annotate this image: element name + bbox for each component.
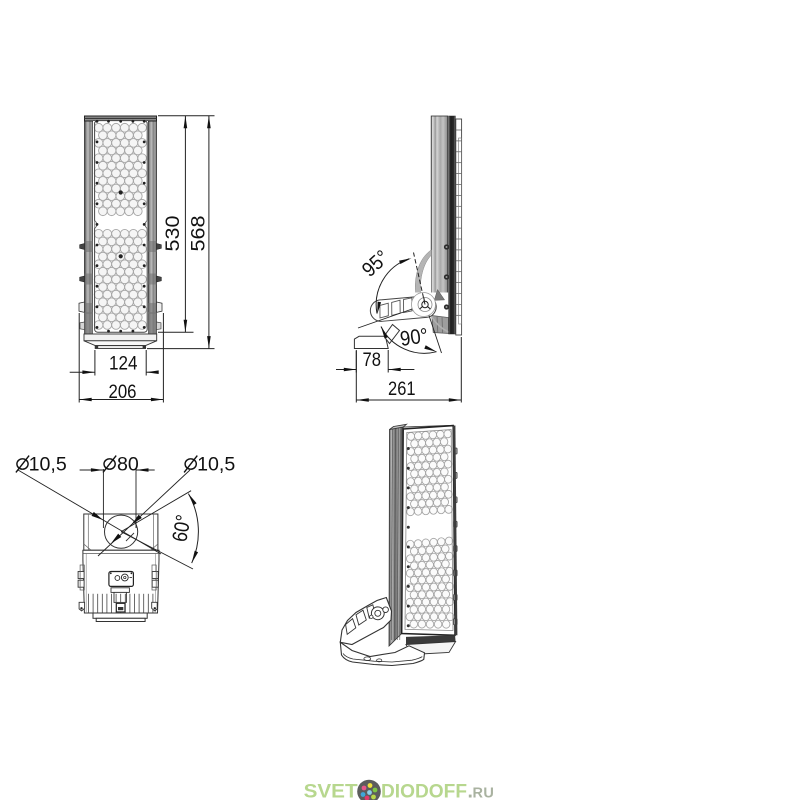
- svg-text:90°: 90°: [399, 324, 430, 351]
- svg-text:124: 124: [109, 353, 138, 375]
- svg-text:RU: RU: [473, 785, 495, 800]
- svg-text:568: 568: [189, 216, 210, 252]
- svg-text:206: 206: [109, 381, 137, 403]
- svg-text:10,5: 10,5: [29, 453, 67, 475]
- svg-text:DIODOFF: DIODOFF: [381, 780, 467, 800]
- svg-text:78: 78: [363, 349, 382, 371]
- svg-text:10,5: 10,5: [197, 453, 235, 475]
- svg-text:261: 261: [388, 378, 416, 400]
- svg-text:60°: 60°: [168, 513, 195, 544]
- svg-text:530: 530: [163, 216, 184, 252]
- svg-text:95°: 95°: [358, 246, 394, 282]
- svg-text:SVET: SVET: [304, 780, 358, 800]
